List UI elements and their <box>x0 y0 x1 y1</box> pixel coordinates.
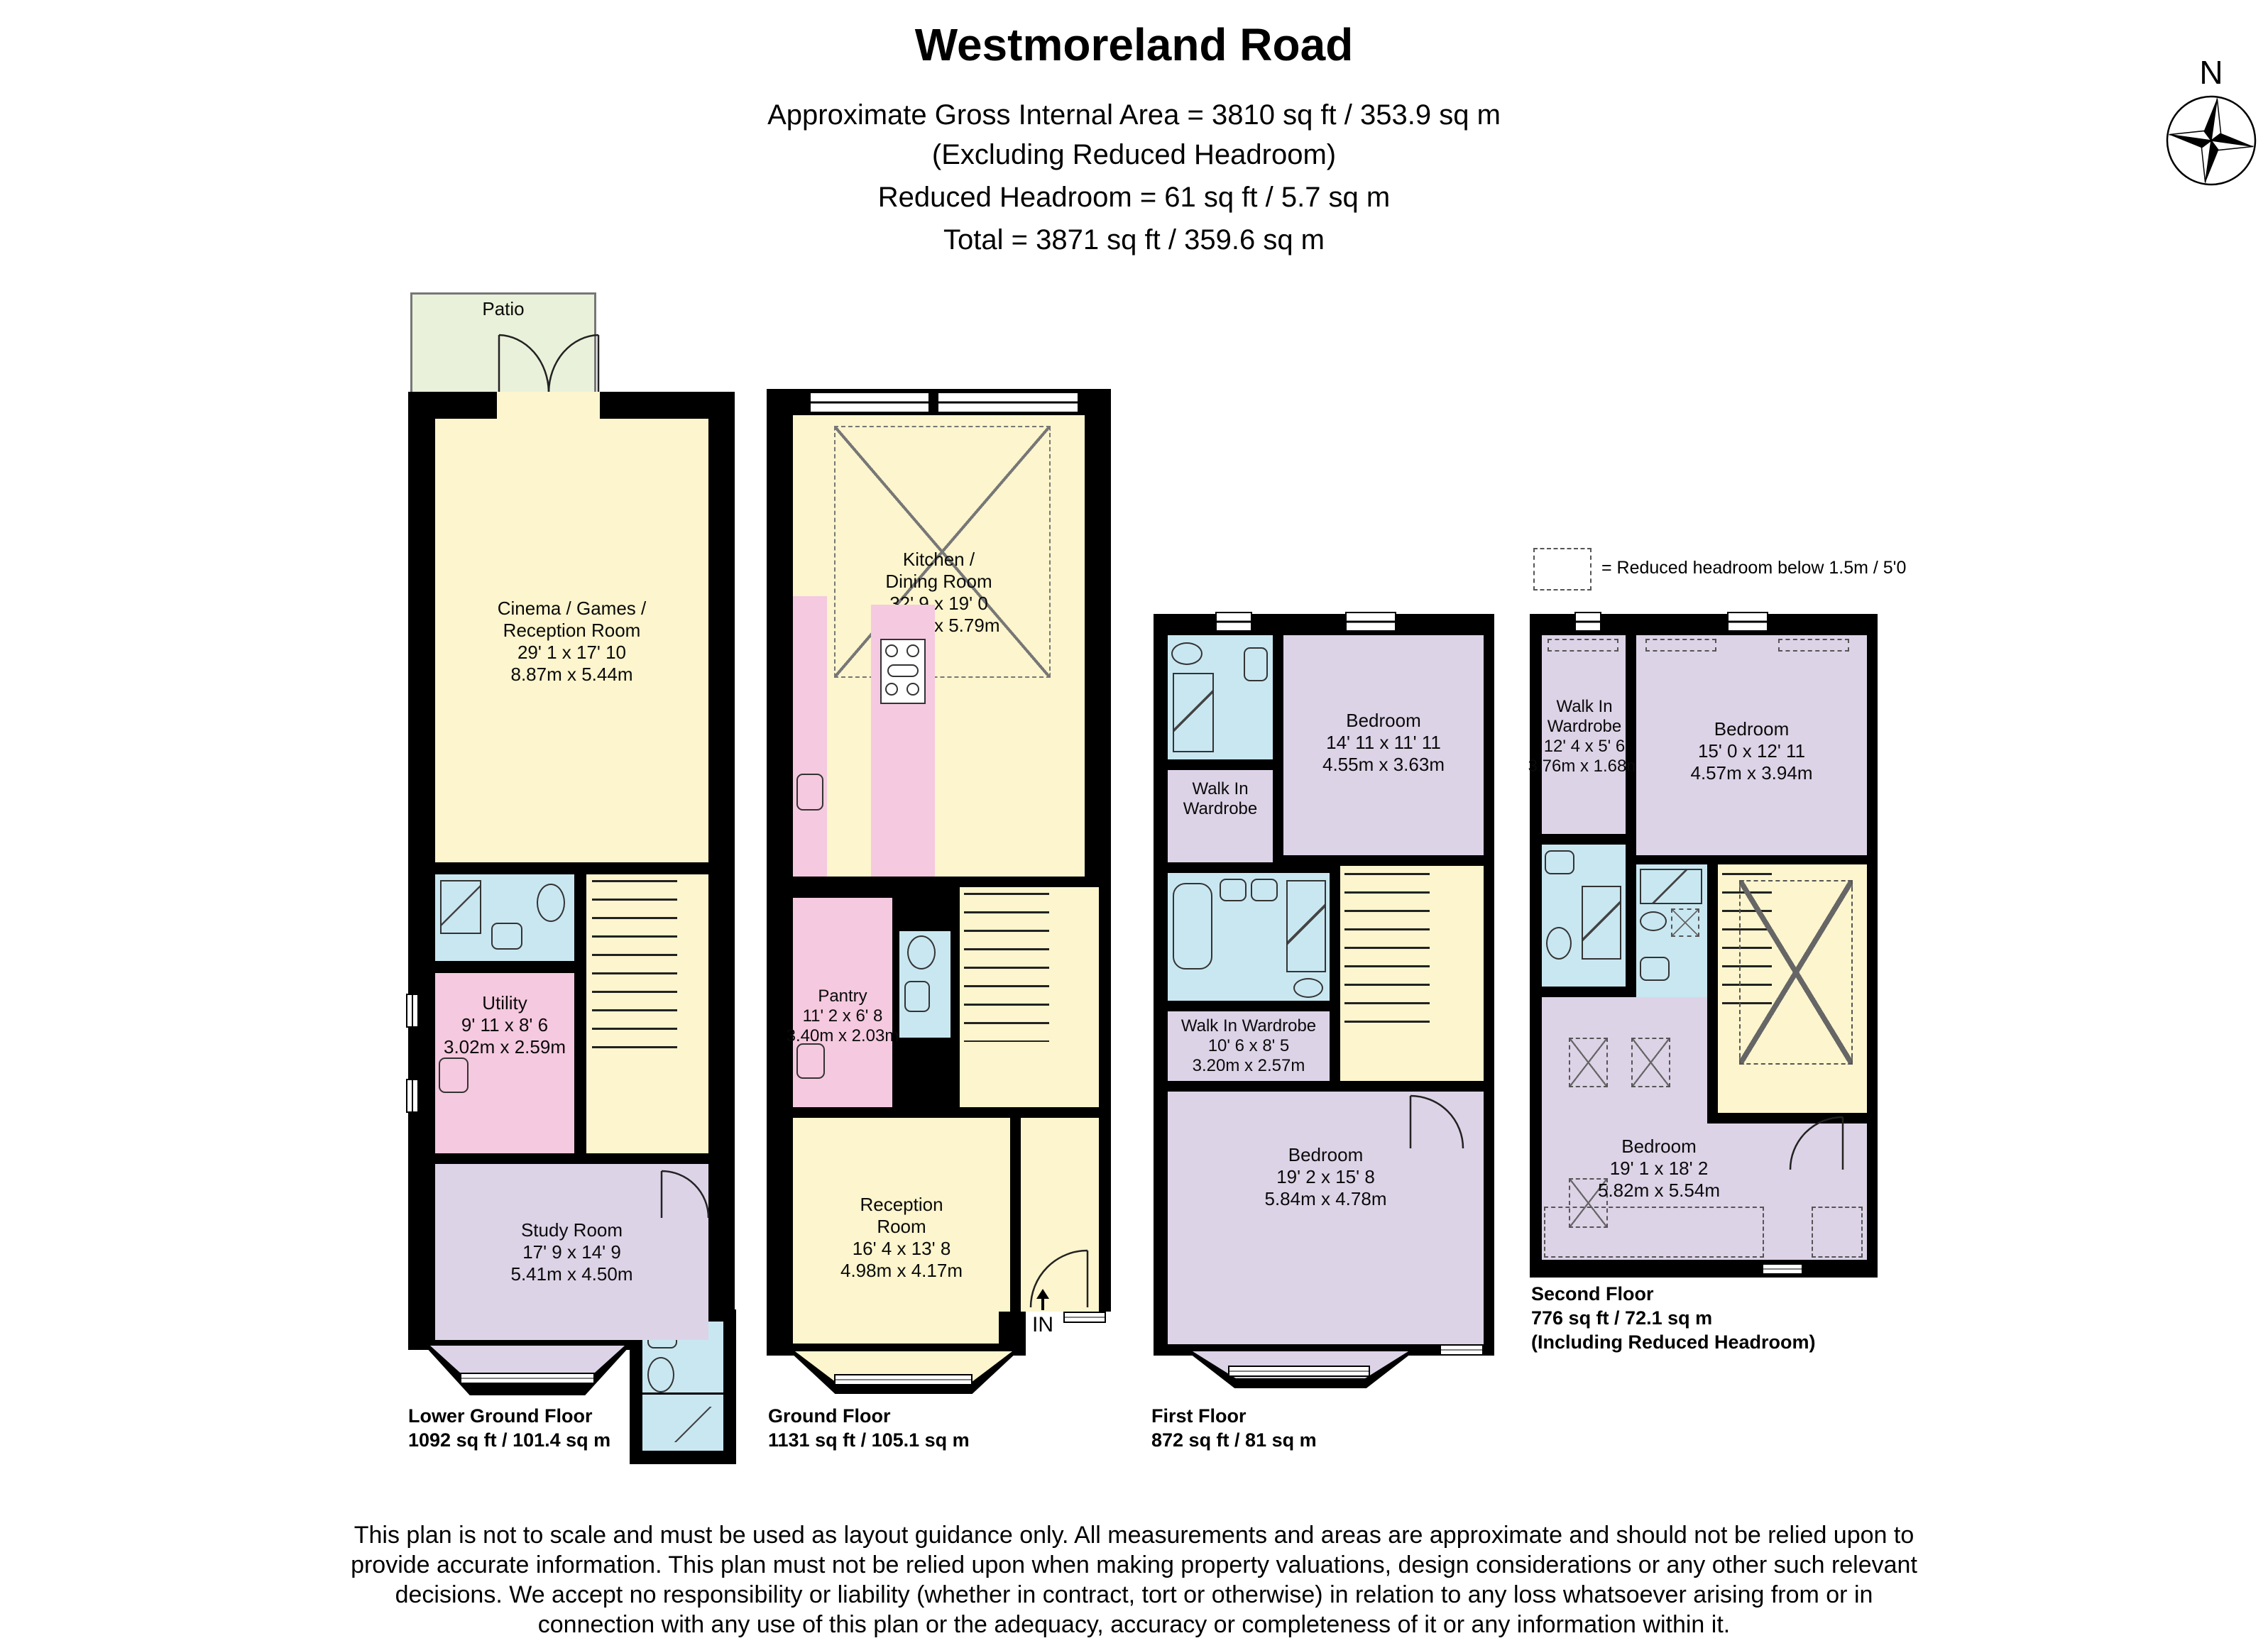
room-label-reception: Reception Room 16' 4 x 13' 8 4.98m x 4.1… <box>793 1194 1010 1282</box>
shower-icon <box>1173 673 1214 752</box>
stairs <box>1344 873 1430 1036</box>
toilet-icon <box>1546 927 1572 960</box>
reduced-headroom-strip <box>1547 639 1618 652</box>
room-label-kitchen: Kitchen / Dining Room 32' 9 x 19' 0 9.98… <box>793 549 1085 637</box>
toilet-icon <box>1640 911 1667 931</box>
door-arc-icon <box>1029 1249 1089 1309</box>
window <box>809 392 930 413</box>
hob-burner-icon <box>885 644 898 657</box>
room-label-pantry: Pantry 11' 2 x 6' 8 3.40m x 2.03m <box>779 987 906 1046</box>
window <box>937 392 1079 413</box>
reduced-headroom-strip <box>1544 1207 1764 1258</box>
room-label-utility: Utility 9' 11 x 8' 6 3.02m x 2.59m <box>421 992 588 1058</box>
window <box>460 1373 595 1384</box>
sink-icon <box>1220 879 1247 901</box>
room-label-bedroom1: Bedroom 14' 11 x 11' 11 4.55m x 3.63m <box>1283 710 1484 776</box>
window <box>1345 612 1396 632</box>
floorplan-page: Westmoreland Road Approximate Gross Inte… <box>0 0 2268 1648</box>
window <box>1574 612 1601 632</box>
area-summary-line-2: (Excluding Reduced Headroom) <box>0 139 2268 171</box>
toilet-icon <box>647 1357 674 1392</box>
sink-icon <box>904 981 930 1012</box>
entrance-label: IN <box>1024 1313 1062 1337</box>
compass: N <box>2158 53 2264 231</box>
entrance-arrow-stem <box>1041 1299 1044 1310</box>
room-label-cinema: Cinema / Games / Reception Room 29' 1 x … <box>435 598 708 686</box>
sink-icon <box>1640 957 1670 981</box>
shower-icon <box>1286 880 1326 972</box>
window <box>406 1079 419 1113</box>
patio-label: Patio <box>410 298 596 320</box>
area-summary-line-3: Reduced Headroom = 61 sq ft / 5.7 sq m <box>0 182 2268 214</box>
hob-burner-icon <box>885 683 898 696</box>
toilet-icon <box>907 935 936 969</box>
sink-icon <box>796 774 823 811</box>
patio-door-opening <box>497 392 600 420</box>
sink-icon <box>491 923 522 950</box>
sink-icon <box>439 1058 469 1093</box>
page-title: Westmoreland Road <box>0 18 2268 71</box>
hob-oval-icon <box>887 664 919 677</box>
shower-icon <box>440 880 481 934</box>
room-label-study: Study Room 17' 9 x 14' 9 5.41m x 4.50m <box>435 1219 708 1285</box>
reduced-headroom-box <box>1739 880 1853 1065</box>
hob-burner-icon <box>906 683 919 696</box>
sink-icon <box>796 1043 825 1079</box>
area-summary-line-1: Approximate Gross Internal Area = 3810 s… <box>0 99 2268 131</box>
shower-icon <box>674 1407 714 1442</box>
reduced-headroom-strip <box>1645 639 1716 652</box>
window <box>1762 1263 1803 1275</box>
reduced-headroom-strip <box>1812 1207 1863 1258</box>
door-arc-icon <box>1409 1094 1464 1150</box>
room-label-wiw2: Walk In Wardrobe 10' 6 x 8' 5 3.20m x 2.… <box>1161 1016 1337 1076</box>
bath-icon <box>1173 883 1212 969</box>
sink-icon <box>1244 647 1268 681</box>
floor-label-ground: Ground Floor 1131 sq ft / 105.1 sq m <box>768 1404 970 1452</box>
window <box>1228 1366 1370 1377</box>
hob-burner-icon <box>906 644 919 657</box>
room-label-wiw1: Walk In Wardrobe <box>1168 779 1273 819</box>
shower-tray-icon <box>1671 908 1699 937</box>
window <box>1063 1312 1106 1323</box>
compass-rose-icon <box>2164 93 2259 188</box>
toilet-icon <box>537 884 565 922</box>
reduced-headroom-box <box>1569 1038 1608 1087</box>
window <box>834 1374 973 1385</box>
window <box>1440 1344 1484 1356</box>
legend-swatch <box>1533 548 1592 590</box>
reduced-headroom-strip <box>1778 639 1849 652</box>
window <box>1215 612 1252 632</box>
toilet-icon <box>1293 978 1323 998</box>
sink-icon <box>1545 850 1574 874</box>
stairs <box>592 880 677 1050</box>
room-label-bedroom1: Bedroom 15' 0 x 12' 11 4.57m x 3.94m <box>1636 718 1867 784</box>
floor-label-lower-ground: Lower Ground Floor 1092 sq ft / 101.4 sq… <box>408 1404 610 1452</box>
area-summary-line-4: Total = 3871 sq ft / 359.6 sq m <box>0 224 2268 256</box>
bathroom-divider <box>642 1392 723 1395</box>
legend-label: = Reduced headroom below 1.5m / 5'0 <box>1601 558 1906 578</box>
stairs <box>964 893 1049 1042</box>
window <box>406 994 419 1028</box>
window <box>1727 612 1768 632</box>
entrance-arrow-icon <box>1036 1289 1049 1299</box>
door-arc-icon <box>660 1170 710 1219</box>
reduced-headroom-box <box>1631 1038 1670 1087</box>
disclaimer: This plan is not to scale and must be us… <box>284 1520 1984 1639</box>
room-label-bedroom2: Bedroom 19' 2 x 15' 8 5.84m x 4.78m <box>1168 1144 1484 1210</box>
floor-label-first: First Floor 872 sq ft / 81 sq m <box>1151 1404 1317 1452</box>
sink-icon <box>1251 879 1278 901</box>
toilet-icon <box>1171 642 1203 665</box>
door-arc-icon <box>1789 1116 1844 1171</box>
room-label-bedroom2: Bedroom 19' 1 x 18' 2 5.82m x 5.54m <box>1542 1136 1776 1202</box>
north-label: N <box>2158 53 2264 92</box>
shower-icon <box>1582 886 1621 960</box>
patio-doors-icon <box>497 332 601 393</box>
kitchen-counter <box>793 596 827 877</box>
shower-icon <box>1640 869 1702 904</box>
floor-label-second: Second Floor 776 sq ft / 72.1 sq m (Incl… <box>1531 1282 1816 1354</box>
room-reception-lower <box>793 1312 999 1344</box>
room-label-wiw: Walk In Wardrobe 12' 4 x 5' 6 3.76m x 1.… <box>1523 697 1645 776</box>
